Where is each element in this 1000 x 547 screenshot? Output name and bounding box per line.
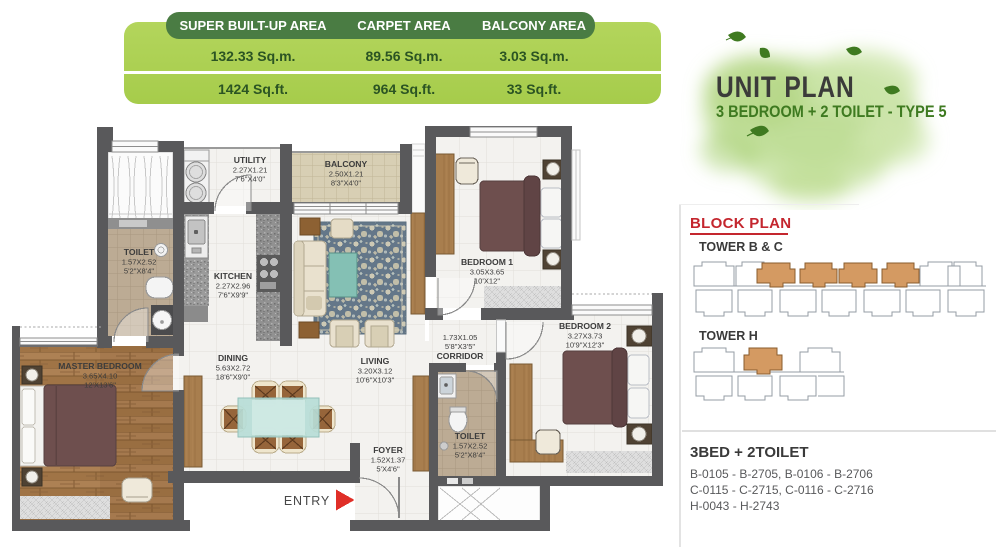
svg-text:2.27X1.21: 2.27X1.21 — [233, 166, 268, 175]
svg-text:5'2"X8'4": 5'2"X8'4" — [124, 267, 155, 276]
svg-text:5'X4'6": 5'X4'6" — [376, 465, 400, 474]
svg-text:CORRIDOR: CORRIDOR — [437, 351, 485, 361]
svg-text:1.52X1.37: 1.52X1.37 — [371, 456, 406, 465]
svg-text:5'2"X8'4": 5'2"X8'4" — [455, 451, 486, 460]
svg-text:BEDROOM 1: BEDROOM 1 — [461, 257, 513, 267]
svg-text:3.27X3.73: 3.27X3.73 — [568, 332, 603, 341]
svg-text:DINING: DINING — [218, 353, 248, 363]
svg-text:12'X13'6": 12'X13'6" — [84, 381, 116, 390]
svg-text:1.73X1.05: 1.73X1.05 — [443, 333, 478, 342]
svg-text:8'3"X4'0": 8'3"X4'0" — [331, 179, 362, 188]
svg-text:TOILET: TOILET — [455, 431, 486, 441]
svg-text:7'6"X4'0": 7'6"X4'0" — [235, 175, 266, 184]
svg-text:FOYER: FOYER — [373, 445, 403, 455]
svg-text:1.57X2.52: 1.57X2.52 — [122, 258, 157, 267]
svg-text:18'6"X9'0": 18'6"X9'0" — [216, 373, 251, 382]
svg-text:10'X12": 10'X12" — [474, 277, 500, 286]
svg-text:KITCHEN: KITCHEN — [214, 271, 252, 281]
svg-text:BALCONY: BALCONY — [325, 159, 368, 169]
svg-text:MASTER BEDROOM: MASTER BEDROOM — [58, 361, 142, 371]
svg-text:LIVING: LIVING — [361, 356, 390, 366]
svg-text:3.65X4.10: 3.65X4.10 — [83, 372, 118, 381]
svg-text:10'6"X10'3": 10'6"X10'3" — [356, 376, 395, 385]
svg-text:10'9"X12'3": 10'9"X12'3" — [566, 341, 605, 350]
svg-text:5.63X2.72: 5.63X2.72 — [216, 364, 251, 373]
svg-text:2.50X1.21: 2.50X1.21 — [329, 170, 364, 179]
svg-text:ENTRY: ENTRY — [284, 494, 330, 508]
svg-text:UTILITY: UTILITY — [234, 155, 267, 165]
svg-text:3.20X3.12: 3.20X3.12 — [358, 367, 393, 376]
svg-text:1.57X2.52: 1.57X2.52 — [453, 442, 488, 451]
svg-text:7'6"X9'9": 7'6"X9'9" — [218, 291, 249, 300]
svg-text:BEDROOM 2: BEDROOM 2 — [559, 321, 611, 331]
svg-text:2.27X2.96: 2.27X2.96 — [216, 282, 251, 291]
svg-text:TOILET: TOILET — [124, 247, 155, 257]
svg-text:5'8"X3'5": 5'8"X3'5" — [445, 342, 476, 351]
svg-text:3.05X3.65: 3.05X3.65 — [470, 268, 505, 277]
